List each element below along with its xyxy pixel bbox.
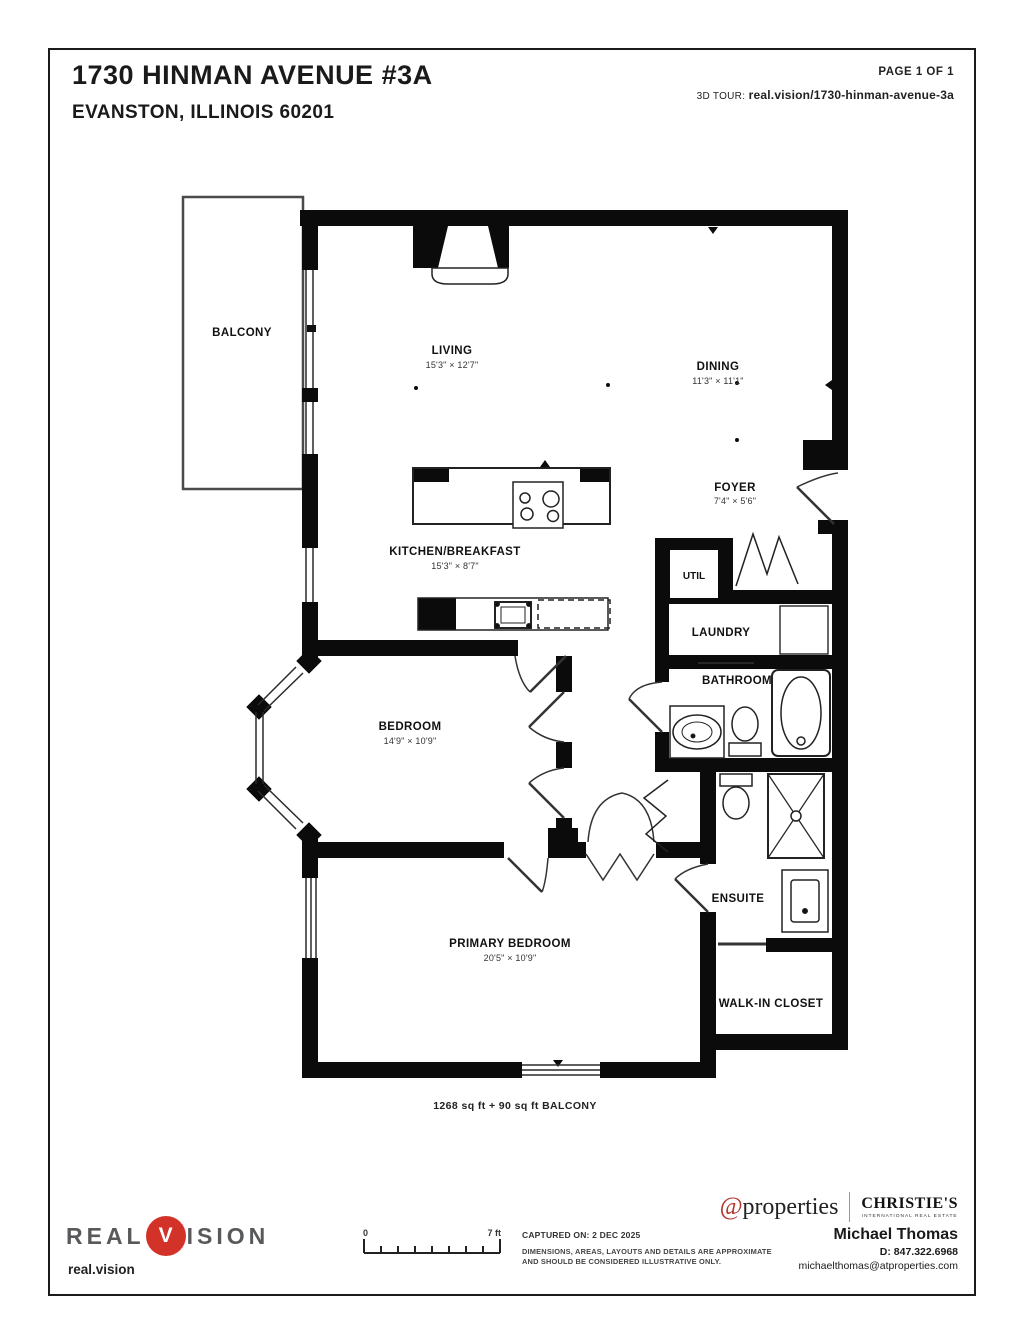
scale-zero: 0 [363, 1228, 368, 1238]
room-label-walk-in-closet: WALK-IN CLOSET [719, 998, 824, 1010]
logo-word-ision: ISION [187, 1223, 270, 1250]
agent-info: Michael Thomas D: 847.322.6968 michaelth… [799, 1226, 958, 1272]
atproperties-logo: @properties [719, 1193, 838, 1221]
page-title: 1730 HINMAN AVENUE #3A [72, 60, 433, 91]
room-label-bathroom: BATHROOM [702, 675, 772, 687]
logo-v-circle-icon: V [146, 1216, 186, 1256]
room-dims-bedroom: 14'9" × 10'9" [384, 736, 437, 746]
floor-plan: BALCONY LIVING 15'3" × 12'7" DINING 11'3… [170, 192, 860, 1102]
agent-name: Michael Thomas [799, 1226, 958, 1244]
room-label-balcony: BALCONY [212, 327, 272, 339]
room-dims-primary-bedroom: 20'5" × 10'9" [484, 953, 537, 963]
disclaimer-line2: AND SHOULD BE CONSIDERED ILLUSTRATIVE ON… [522, 1257, 772, 1267]
scale-bar: 0 7 ft [363, 1228, 501, 1260]
tour-url[interactable]: real.vision/1730-hinman-avenue-3a [749, 88, 954, 102]
balcony-door-handle [307, 325, 316, 332]
room-label-laundry: LAUNDRY [692, 627, 751, 639]
atproperties-name: properties [742, 1194, 838, 1220]
room-label-primary-bedroom: PRIMARY BEDROOM [449, 938, 571, 950]
christies-name: CHRISTIE'S [861, 1195, 958, 1213]
room-label-util: UTIL [683, 571, 705, 582]
room-label-foyer: FOYER [714, 482, 756, 494]
room-dims-living: 15'3" × 12'7" [426, 360, 479, 370]
page-number: PAGE 1 OF 1 [878, 66, 954, 78]
realvision-logo: REAL V ISION [66, 1216, 269, 1256]
area-note: 1268 sq ft + 90 sq ft BALCONY [170, 1100, 860, 1112]
laundry-appliance [780, 606, 828, 654]
logo-site-url[interactable]: real.vision [68, 1262, 135, 1277]
appliance-dashed [538, 600, 610, 628]
agent-email[interactable]: michaelthomas@atproperties.com [799, 1260, 958, 1272]
at-symbol-icon: @ [719, 1193, 742, 1220]
ensuite-toilet [723, 787, 749, 819]
room-dims-kitchen: 15'3" × 8'7" [431, 561, 479, 571]
agent-phone: D: 847.322.6968 [799, 1246, 958, 1258]
balcony-outline [183, 197, 303, 489]
room-label-living: LIVING [432, 345, 473, 357]
room-label-ensuite: ENSUITE [712, 893, 765, 905]
room-label-dining: DINING [697, 361, 740, 373]
disclaimer: DIMENSIONS, AREAS, LAYOUTS AND DETAILS A… [522, 1247, 772, 1267]
tour-link-line: 3D TOUR: real.vision/1730-hinman-avenue-… [697, 88, 954, 102]
page-subtitle: EVANSTON, ILLINOIS 60201 [72, 102, 334, 124]
logo-divider [849, 1192, 850, 1222]
scale-max: 7 ft [488, 1228, 502, 1238]
christies-sub: INTERNATIONAL REAL ESTATE [861, 1214, 958, 1219]
kitchen-sink [495, 602, 531, 628]
toilet [732, 707, 758, 741]
room-label-kitchen: KITCHEN/BREAKFAST [389, 546, 520, 558]
captured-on: CAPTURED ON: 2 DEC 2025 [522, 1230, 640, 1240]
ensuite-fixtures [720, 774, 828, 932]
christies-logo: CHRISTIE'S INTERNATIONAL REAL ESTATE [861, 1195, 958, 1219]
room-dims-dining: 11'3" × 11'1" [692, 376, 743, 386]
floorplan-page: 1730 HINMAN AVENUE #3A EVANSTON, ILLINOI… [0, 0, 1024, 1325]
tour-label: 3D TOUR: [697, 91, 746, 102]
scale-ruler-icon [363, 1239, 501, 1255]
disclaimer-line1: DIMENSIONS, AREAS, LAYOUTS AND DETAILS A… [522, 1247, 772, 1257]
brokerage-logos: @properties CHRISTIE'S INTERNATIONAL REA… [719, 1192, 958, 1222]
room-dims-foyer: 7'4" × 5'6" [714, 496, 756, 506]
room-label-bedroom: BEDROOM [379, 721, 442, 733]
logo-word-real: REAL [66, 1223, 145, 1250]
